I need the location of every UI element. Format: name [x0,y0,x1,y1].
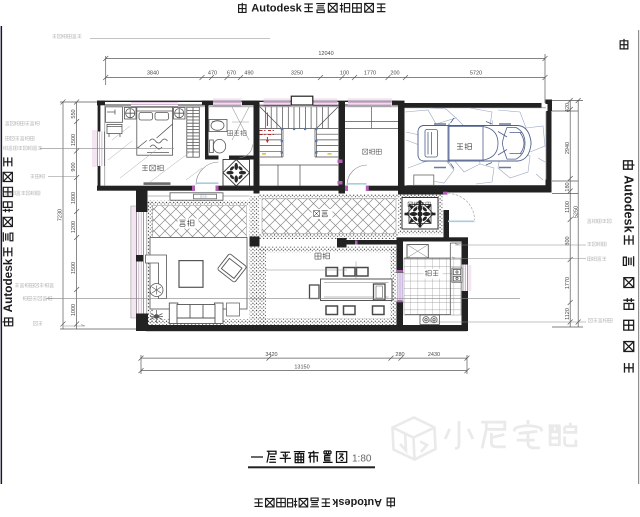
svg-text:5720: 5720 [470,71,482,77]
svg-text:470: 470 [208,71,217,77]
svg-text:1120: 1120 [565,308,571,320]
svg-text:200: 200 [390,71,399,77]
svg-text:1800: 1800 [71,192,77,204]
svg-text:420: 420 [565,103,571,112]
svg-text:490: 490 [244,71,253,77]
svg-text:1500: 1500 [71,262,77,274]
svg-text:3840: 3840 [147,71,159,77]
svg-text:900: 900 [71,162,77,171]
svg-text:100: 100 [340,71,349,77]
svg-text:1000: 1000 [71,304,77,316]
svg-text:1770: 1770 [565,277,571,289]
svg-text:13150: 13150 [294,365,309,371]
svg-text:670: 670 [227,71,236,77]
svg-text:2430: 2430 [428,352,440,358]
svg-text:2940: 2940 [565,142,571,154]
svg-text:550: 550 [71,109,77,118]
svg-text:Autodesk: Autodesk [1,258,15,312]
svg-text:1500: 1500 [71,134,77,146]
svg-text:180: 180 [565,182,571,191]
svg-text:12040: 12040 [318,51,333,57]
svg-text:800: 800 [565,236,571,245]
svg-text:3420: 3420 [265,352,277,358]
svg-text:Autodesk: Autodesk [251,3,302,15]
svg-text:5250: 5250 [574,206,580,218]
svg-text:1200: 1200 [71,221,77,233]
svg-text:1770: 1770 [364,71,376,77]
svg-text:3250: 3250 [291,71,303,77]
svg-text:7230: 7230 [58,209,64,221]
svg-text:1100: 1100 [565,201,571,213]
svg-text:Autodesk: Autodesk [331,496,382,508]
svg-text:280: 280 [395,352,404,358]
svg-text:1:80: 1:80 [352,454,372,465]
svg-text:Autodesk: Autodesk [621,175,635,233]
